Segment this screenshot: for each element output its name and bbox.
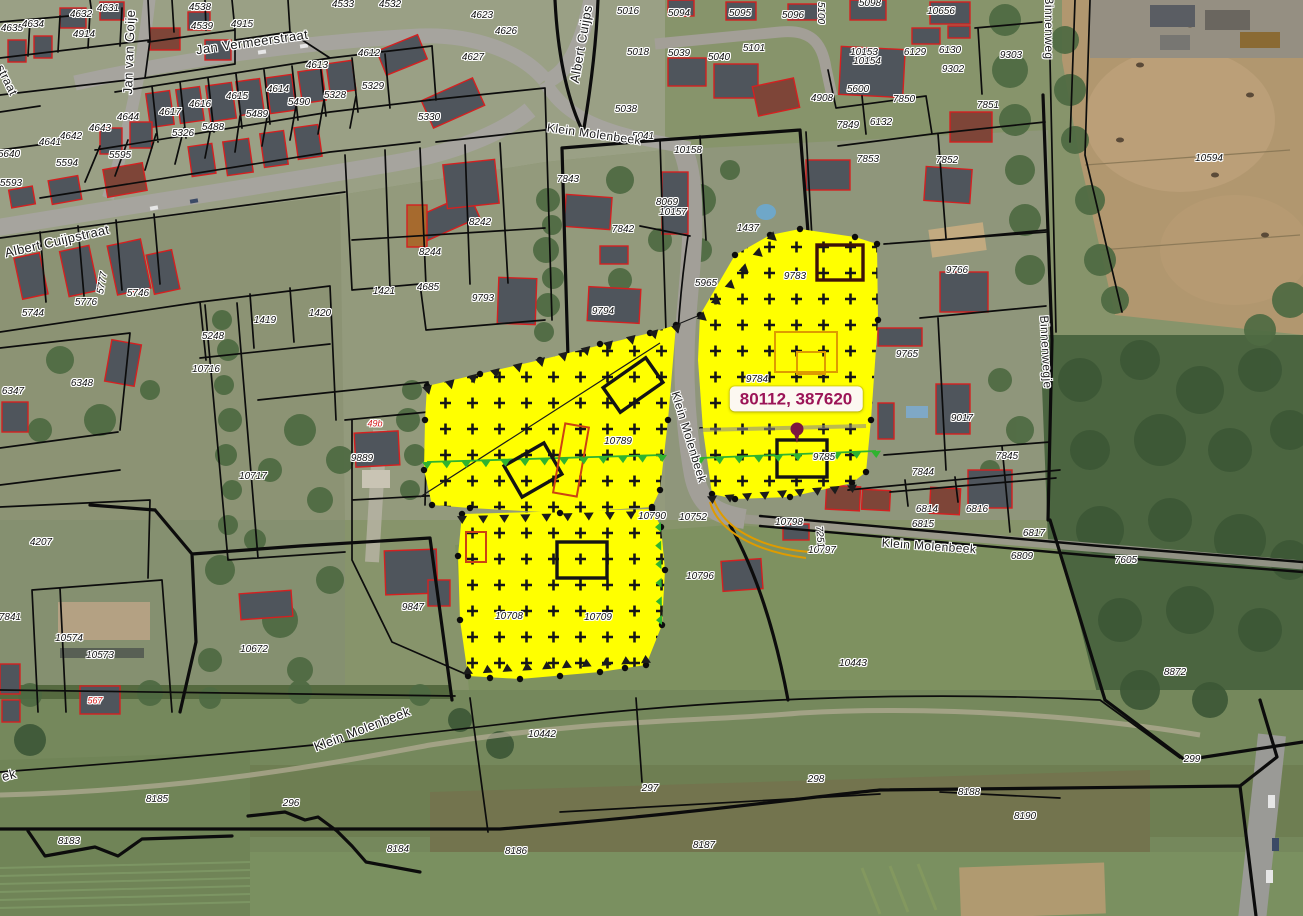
coordinate-text: 80112, 387620 xyxy=(740,389,853,408)
location-marker-icon xyxy=(789,422,805,444)
aerial-basemap xyxy=(0,0,1303,916)
map-canvas[interactable]: 4631463245384539463546344914491546134617… xyxy=(0,0,1303,916)
coordinate-tooltip: 80112, 387620 xyxy=(730,386,863,411)
